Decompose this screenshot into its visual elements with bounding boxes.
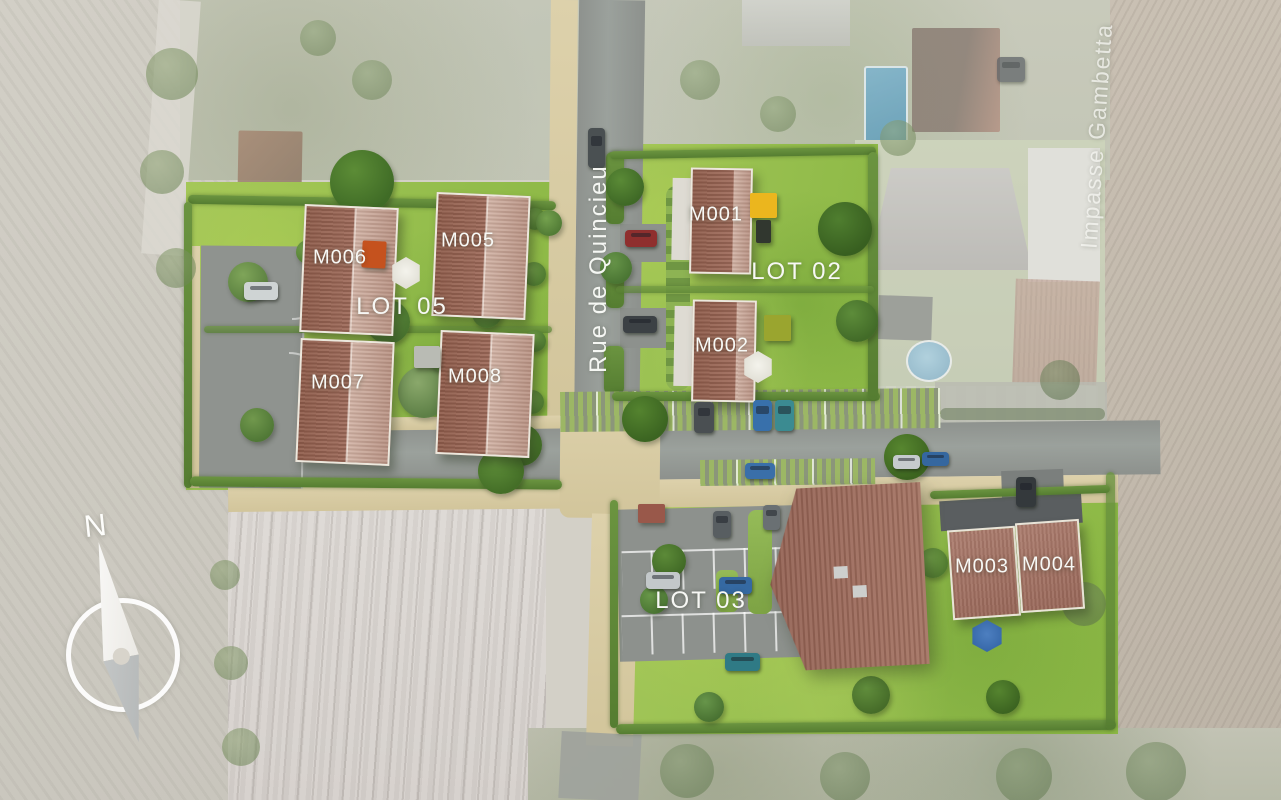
hedge	[1106, 472, 1115, 730]
car	[893, 455, 920, 469]
car	[1016, 477, 1036, 507]
unit-label-m007: M007	[311, 372, 365, 395]
lot-label-02: LOT 02	[751, 258, 843, 286]
road-continuation	[558, 731, 641, 800]
house-m008	[435, 330, 534, 458]
shed-parking	[638, 504, 665, 523]
unit-label-m001: M001	[689, 204, 743, 227]
car	[713, 511, 731, 538]
car	[623, 316, 657, 333]
car	[725, 653, 760, 671]
car	[694, 402, 714, 433]
garden-equipment	[756, 220, 771, 243]
lot-label-03: LOT 03	[655, 587, 747, 615]
unit-label-m002: M002	[695, 335, 749, 358]
hedge	[610, 500, 618, 728]
unit-label-m008: M008	[448, 366, 502, 389]
hedge	[184, 202, 192, 488]
skylight	[833, 566, 848, 579]
unit-label-m006: M006	[313, 247, 367, 270]
lot-label-05: LOT 05	[356, 293, 448, 321]
unit-label-m003: M003	[955, 556, 1009, 579]
garden-shed-gray	[414, 346, 440, 368]
hedge-row	[940, 408, 1105, 420]
car	[922, 452, 949, 466]
unit-label-m004: M004	[1022, 554, 1076, 577]
parking-strip-south	[700, 458, 875, 486]
car	[997, 57, 1025, 82]
car	[753, 400, 772, 431]
car	[244, 282, 278, 300]
existing-house-roof	[912, 28, 1000, 132]
unit-label-m005: M005	[441, 230, 495, 253]
car	[625, 230, 657, 247]
garden-shed-green	[764, 315, 791, 341]
car	[763, 505, 780, 530]
hedge	[616, 286, 874, 293]
car	[775, 400, 794, 431]
plowed-field	[228, 488, 546, 800]
site-plan: M006 M005 M007 M008 M001 M002 M003 M004 …	[0, 0, 1281, 800]
house-m007	[295, 338, 394, 466]
garden-shed-yellow	[750, 193, 777, 218]
skylight	[852, 585, 867, 598]
car	[745, 463, 775, 479]
compass-north-label: N	[82, 507, 108, 545]
field-east	[1100, 0, 1281, 800]
hedge	[868, 152, 878, 400]
street-label-rue-de-quincieu: Rue de Quincieu	[585, 103, 613, 373]
building-lot03	[765, 482, 929, 672]
existing-house-north	[742, 0, 850, 46]
compass-rose: N	[58, 500, 188, 765]
